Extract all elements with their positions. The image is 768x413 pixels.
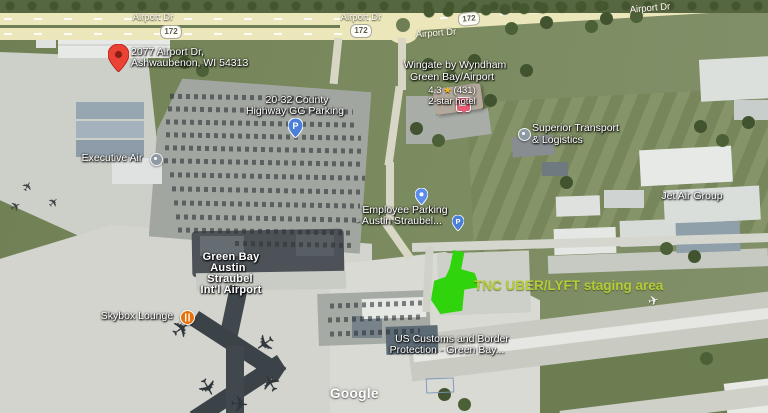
road-label-airport-dr: Airport Dr bbox=[341, 12, 382, 24]
building-top-right bbox=[699, 56, 768, 102]
svg-text:P: P bbox=[292, 121, 298, 131]
hangar-row bbox=[76, 121, 144, 138]
staging-area-label: TNC UBER/LYFT staging area bbox=[474, 278, 663, 293]
employee-parking-pin[interactable] bbox=[415, 188, 428, 205]
route-shield-172: 172 bbox=[160, 25, 182, 39]
poi-wingate-hotel[interactable]: Wingate by Wyndham bbox=[404, 60, 507, 72]
poi-skybox-lounge[interactable]: Skybox Lounge bbox=[101, 311, 173, 323]
review-count: (431) bbox=[454, 85, 476, 96]
route-shield-172: 172 bbox=[350, 24, 372, 38]
poi-superior-transport[interactable]: & Logistics bbox=[532, 135, 583, 147]
svg-text:P: P bbox=[456, 217, 461, 226]
parking-pin[interactable]: P bbox=[452, 215, 464, 231]
road-label-airport-dr: Airport Dr bbox=[415, 27, 456, 41]
superior-pin[interactable] bbox=[518, 128, 531, 141]
fork-knife-glyph bbox=[181, 311, 194, 324]
roundabout-island bbox=[396, 18, 410, 32]
satellite-map[interactable]: ✈ ✈ ✈ ✈ ✈ ✈ ✈ ✈ ✈ Airport Dr Airport Dr … bbox=[0, 0, 768, 413]
access-road bbox=[330, 38, 343, 85]
hotel-category: 2-star hotel bbox=[428, 96, 476, 108]
poi-county-parking[interactable]: Highway GG Parking bbox=[246, 106, 344, 118]
route-shield-172: 172 bbox=[457, 11, 480, 27]
access-road bbox=[384, 86, 403, 166]
hangar-east bbox=[556, 195, 601, 217]
road-label-airport-dr: Airport Dr bbox=[133, 12, 174, 24]
poi-airport-name[interactable]: Int'l Airport bbox=[200, 285, 261, 297]
rating-value: 4.3 bbox=[428, 85, 441, 96]
poi-customs[interactable]: Protection - Green Bay... bbox=[390, 345, 505, 357]
executive-air-pin[interactable] bbox=[150, 153, 163, 166]
hangar-row bbox=[76, 102, 144, 119]
poi-wingate-hotel[interactable]: Green Bay/Airport bbox=[410, 72, 494, 84]
poi-jet-air-group[interactable]: Jet Air Group bbox=[661, 191, 722, 203]
address-label[interactable]: Ashwaubenon, WI 54313 bbox=[131, 58, 248, 70]
survey-rect bbox=[426, 378, 455, 394]
restaurant-icon[interactable] bbox=[180, 310, 195, 325]
building bbox=[542, 162, 568, 176]
building-top-right bbox=[734, 100, 768, 120]
airplane-icon: ✈ bbox=[647, 293, 661, 308]
jet-air-hangar bbox=[639, 146, 733, 187]
red-map-pin[interactable] bbox=[108, 44, 129, 72]
hotel-rating[interactable]: 4.3 ★ (431) bbox=[428, 85, 475, 96]
lane-dashes bbox=[4, 18, 394, 20]
parking-pin[interactable]: P bbox=[288, 118, 303, 138]
google-watermark: Google bbox=[330, 386, 379, 401]
airplane-icon: ✈ bbox=[229, 393, 249, 413]
poi-superior-transport[interactable]: Superior Transport bbox=[532, 123, 619, 135]
lane-dashes bbox=[4, 33, 394, 35]
poi-executive-air[interactable]: Executive Air bbox=[82, 153, 143, 165]
star-icon: ★ bbox=[443, 85, 451, 96]
poi-employee-parking[interactable]: - Austin Straubel... bbox=[356, 216, 442, 228]
hangar-east bbox=[604, 190, 644, 208]
